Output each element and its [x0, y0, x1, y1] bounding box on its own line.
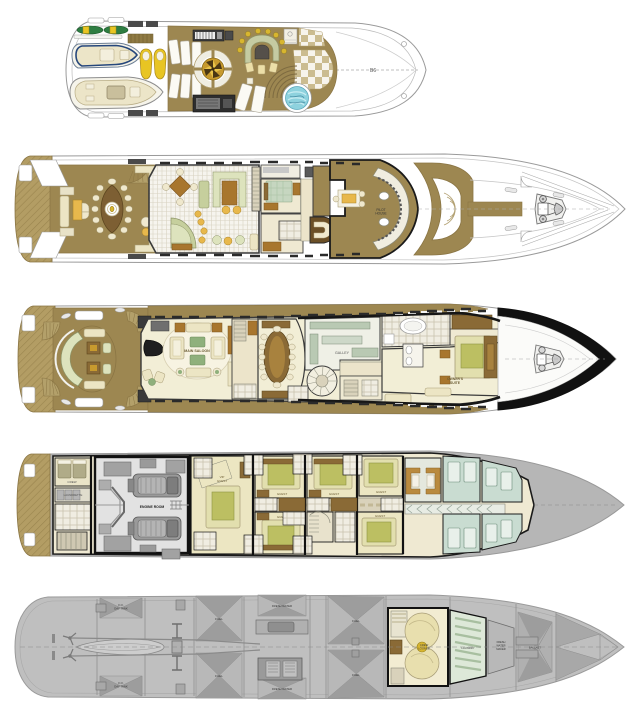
svg-text:FRESH: FRESH — [497, 640, 506, 644]
svg-text:GALLEY: GALLEY — [335, 351, 350, 355]
svg-text:BALLAST: BALLAST — [529, 646, 542, 650]
svg-text:GUEST: GUEST — [277, 492, 288, 496]
svg-text:MAKER: MAKER — [496, 647, 505, 651]
svg-text:DAY TANK: DAY TANK — [114, 607, 128, 611]
svg-text:FUEL: FUEL — [215, 617, 223, 621]
svg-text:GUEST: GUEST — [375, 514, 386, 518]
svg-text:ENGINE ROOM: ENGINE ROOM — [140, 505, 165, 509]
svg-text:FUEL: FUEL — [352, 619, 360, 623]
svg-text:LAUNDRETTE: LAUNDRETTE — [64, 493, 83, 497]
svg-text:FUEL: FUEL — [352, 673, 360, 677]
svg-text:B6: B6 — [370, 68, 376, 74]
svg-text:DAY TANK: DAY TANK — [114, 685, 128, 689]
svg-text:CREW: CREW — [67, 480, 76, 484]
svg-text:GUEST: GUEST — [217, 479, 228, 483]
svg-text:LAUNDRY: LAUNDRY — [461, 646, 474, 650]
svg-text:MAIN SALOON: MAIN SALOON — [184, 349, 210, 353]
svg-text:GUEST: GUEST — [329, 492, 340, 496]
svg-text:SUITE: SUITE — [450, 381, 461, 385]
svg-text:FRESH WATER: FRESH WATER — [272, 604, 292, 608]
svg-text:FRESH WATER: FRESH WATER — [272, 687, 292, 691]
svg-text:FUEL: FUEL — [215, 674, 223, 678]
svg-text:GUEST: GUEST — [376, 490, 387, 494]
svg-text:HOUSE: HOUSE — [375, 212, 386, 216]
